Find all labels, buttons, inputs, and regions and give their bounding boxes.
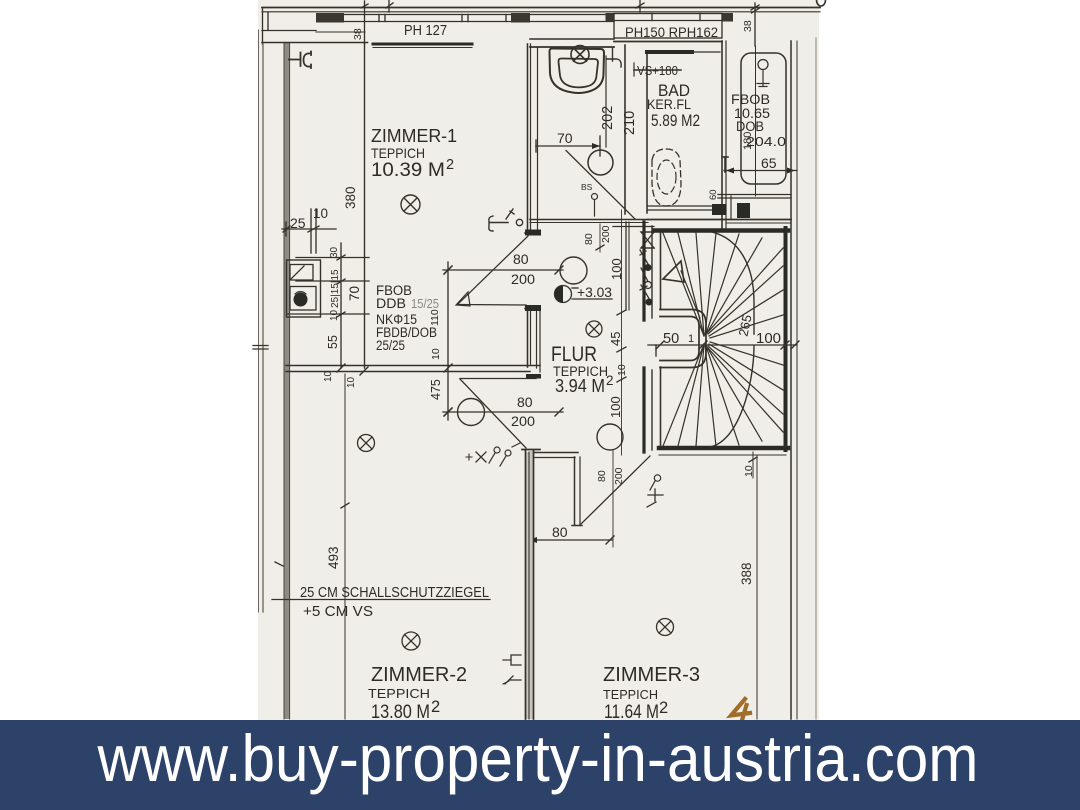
svg-text:80: 80 bbox=[513, 251, 529, 267]
svg-text:DDB: DDB bbox=[376, 296, 406, 311]
svg-text:475: 475 bbox=[429, 379, 443, 400]
svg-text:50: 50 bbox=[663, 331, 679, 347]
svg-text:10: 10 bbox=[329, 309, 340, 321]
svg-text:10.39 M: 10.39 M bbox=[371, 159, 445, 181]
svg-text:3.94 M: 3.94 M bbox=[555, 376, 605, 396]
svg-text:10: 10 bbox=[346, 376, 357, 388]
svg-text:2: 2 bbox=[606, 373, 614, 388]
svg-text:+5 CM VS: +5 CM VS bbox=[303, 604, 373, 620]
svg-text:110: 110 bbox=[429, 309, 441, 326]
svg-text:PH150 RPH162: PH150 RPH162 bbox=[625, 24, 718, 40]
svg-text:www.buy-property-in-austria.co: www.buy-property-in-austria.com bbox=[97, 721, 979, 795]
svg-text:80: 80 bbox=[596, 470, 608, 482]
svg-text:2: 2 bbox=[431, 698, 440, 716]
svg-text:80: 80 bbox=[552, 524, 568, 540]
svg-text:65: 65 bbox=[761, 155, 777, 171]
svg-text:45: 45 bbox=[608, 332, 623, 346]
svg-text:200: 200 bbox=[511, 413, 535, 429]
svg-text:2: 2 bbox=[446, 157, 454, 173]
svg-text:ZIMMER-1: ZIMMER-1 bbox=[371, 126, 457, 146]
svg-text:15/25: 15/25 bbox=[411, 296, 439, 311]
svg-text:FLUR: FLUR bbox=[551, 343, 597, 366]
svg-text:1: 1 bbox=[688, 333, 694, 345]
svg-text:380: 380 bbox=[343, 186, 358, 209]
svg-text:180: 180 bbox=[742, 132, 754, 150]
svg-text:25: 25 bbox=[290, 215, 306, 231]
svg-text:80: 80 bbox=[517, 394, 533, 410]
svg-text:TEPPICH: TEPPICH bbox=[368, 686, 430, 701]
svg-text:2: 2 bbox=[659, 699, 668, 717]
svg-text:11.64 M: 11.64 M bbox=[604, 702, 659, 723]
svg-text:200: 200 bbox=[511, 271, 535, 287]
svg-text:388: 388 bbox=[739, 562, 754, 585]
svg-text:30: 30 bbox=[329, 246, 340, 258]
svg-text:38: 38 bbox=[742, 20, 754, 32]
svg-text:13.80 M: 13.80 M bbox=[371, 702, 430, 723]
svg-text:70: 70 bbox=[347, 286, 362, 301]
svg-text:5.89 M2: 5.89 M2 bbox=[651, 112, 700, 130]
svg-text:ZIMMER-3: ZIMMER-3 bbox=[603, 664, 700, 686]
svg-text:10: 10 bbox=[430, 348, 442, 360]
svg-text:38: 38 bbox=[352, 28, 364, 40]
svg-text:PH 127: PH 127 bbox=[404, 23, 447, 39]
svg-text:10: 10 bbox=[616, 364, 628, 376]
svg-text:70: 70 bbox=[557, 130, 573, 146]
svg-text:100: 100 bbox=[756, 331, 781, 347]
svg-text:10: 10 bbox=[313, 206, 328, 221]
svg-text:100: 100 bbox=[608, 396, 623, 418]
svg-text:25 CM SCHALLSCHUTZZIEGEL: 25 CM SCHALLSCHUTZZIEGEL bbox=[300, 585, 489, 601]
svg-text:80: 80 bbox=[583, 233, 595, 245]
svg-text:25/25: 25/25 bbox=[376, 338, 405, 353]
svg-text:10: 10 bbox=[323, 370, 334, 382]
svg-text:FBOB: FBOB bbox=[731, 92, 770, 107]
svg-text:493: 493 bbox=[326, 546, 341, 569]
svg-text:25|15|15: 25|15|15 bbox=[330, 269, 341, 308]
svg-text:+3.03: +3.03 bbox=[577, 284, 612, 300]
svg-text:202: 202 bbox=[600, 106, 616, 130]
svg-text:ZIMMER-2: ZIMMER-2 bbox=[371, 664, 467, 686]
svg-text:210: 210 bbox=[622, 111, 638, 135]
svg-text:55: 55 bbox=[326, 335, 340, 349]
svg-text:200: 200 bbox=[600, 225, 612, 243]
svg-text:TEPPICH: TEPPICH bbox=[603, 687, 658, 702]
svg-text:200: 200 bbox=[613, 467, 625, 485]
svg-text:10: 10 bbox=[743, 465, 755, 477]
svg-text:KER.FL: KER.FL bbox=[647, 96, 691, 112]
svg-text:BS: BS bbox=[581, 182, 593, 192]
